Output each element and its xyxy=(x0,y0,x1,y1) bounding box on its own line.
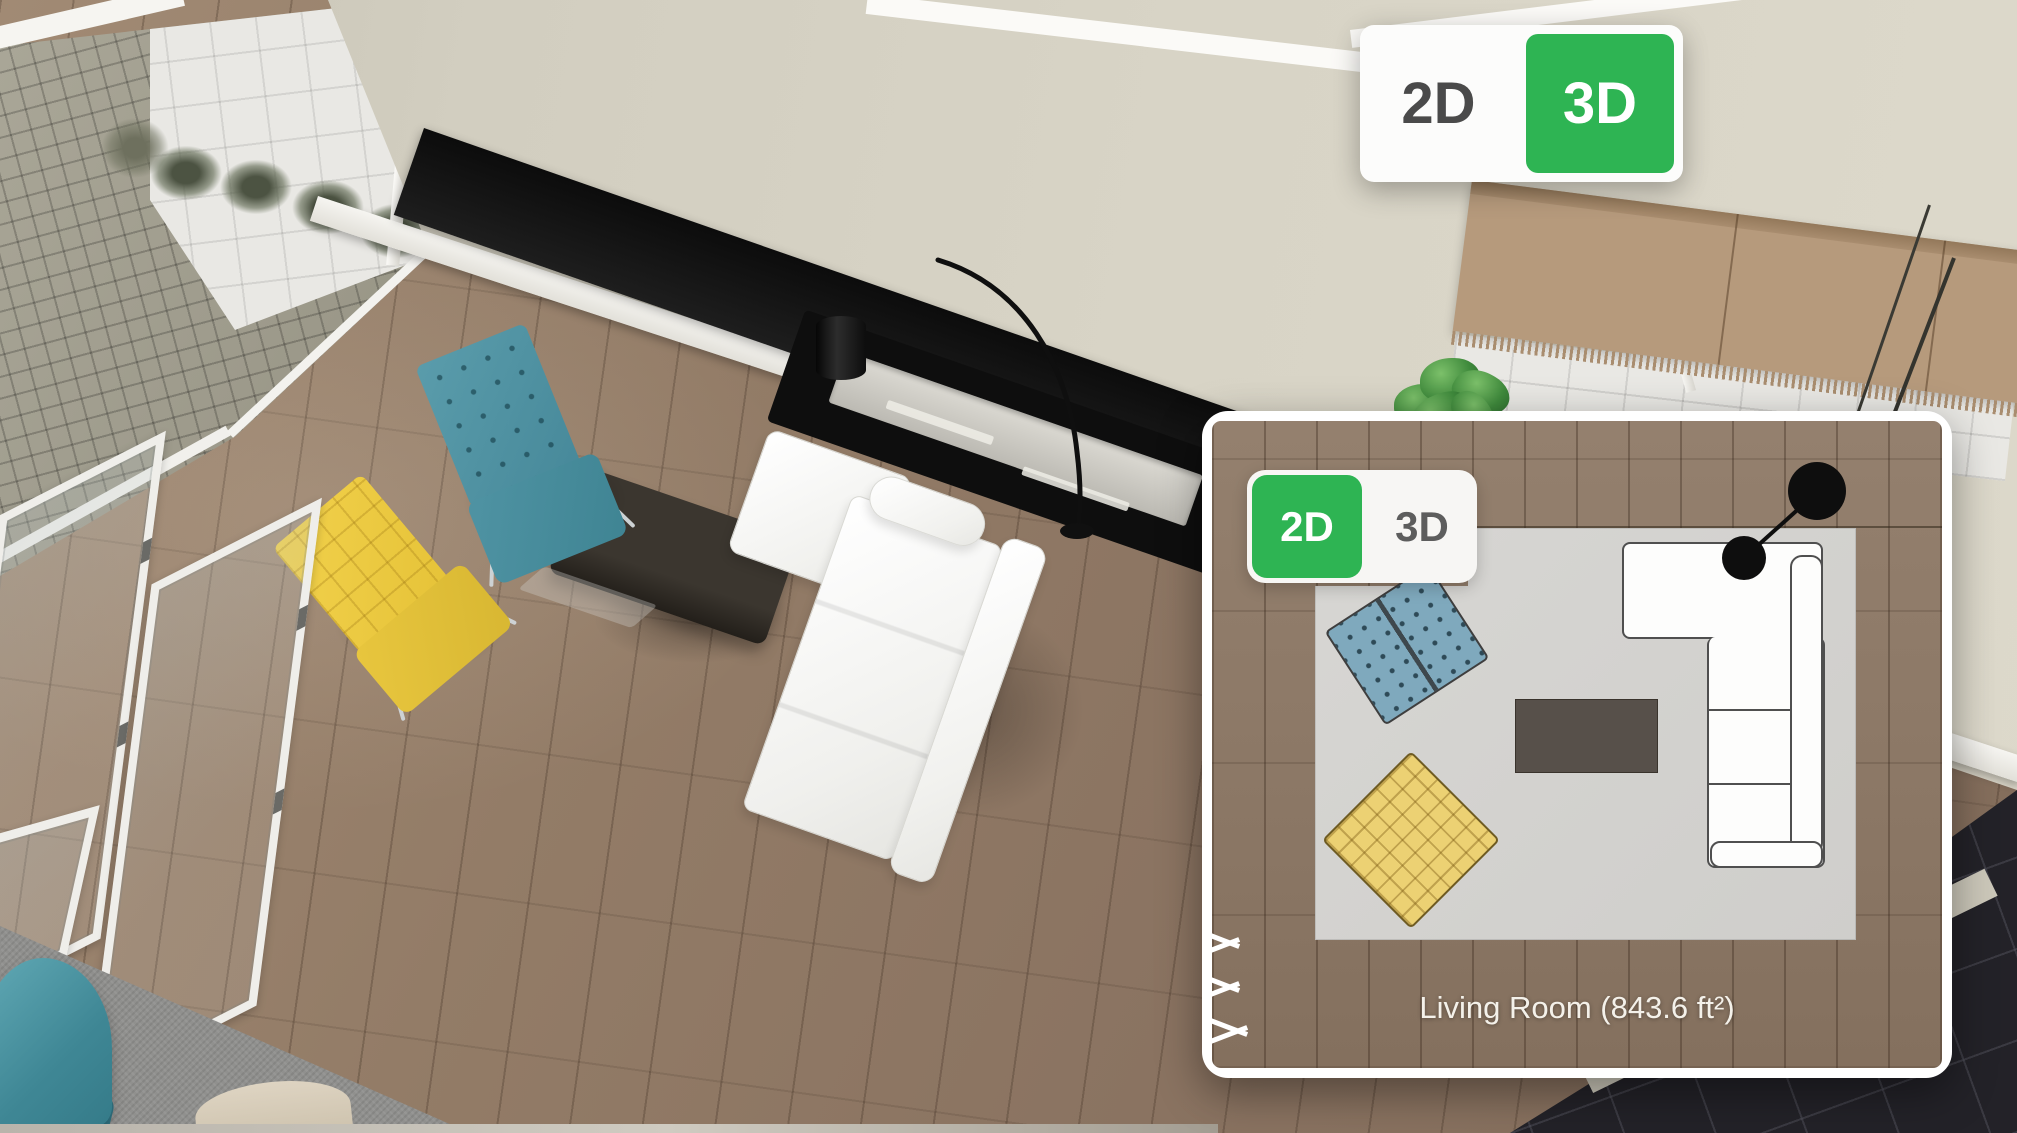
bottom-wall-sliver xyxy=(0,1124,1218,1133)
plan-floor-lamp-shade[interactable] xyxy=(1722,536,1766,580)
blind-fold-line xyxy=(1717,214,1738,365)
floorplan-card: 2D 3D Living Room (843.6 ft²) xyxy=(1202,411,1952,1078)
plan-wall-line xyxy=(1468,526,1942,528)
blind-fold-line xyxy=(1924,240,1945,391)
plan-sofa-backrest[interactable] xyxy=(1790,555,1823,855)
floorplan-2d-preview[interactable]: 2D 3D Living Room (843.6 ft²) xyxy=(1212,421,1942,1068)
plan-view-switcher[interactable]: 2D 3D xyxy=(1247,470,1477,583)
home-design-app: 2D 3D 2D 3D Living R xyxy=(0,0,2017,1133)
pendant-cylinder[interactable] xyxy=(816,316,866,380)
room-label: Living Room (843.6 ft²) xyxy=(1212,990,1942,1026)
view-2d-button[interactable]: 2D xyxy=(1360,69,1517,138)
plan-view-2d-button[interactable]: 2D xyxy=(1252,475,1362,578)
view-3d-button[interactable]: 3D xyxy=(1526,34,1674,173)
plan-sofa-armrest[interactable] xyxy=(1710,841,1823,868)
plan-door-swing-mark xyxy=(1212,924,1244,962)
plan-coffee-table[interactable] xyxy=(1515,699,1658,773)
plan-floor-lamp[interactable] xyxy=(1788,462,1846,520)
plan-view-3d-button[interactable]: 3D xyxy=(1367,470,1477,583)
view-switcher[interactable]: 2D 3D xyxy=(1360,25,1683,182)
